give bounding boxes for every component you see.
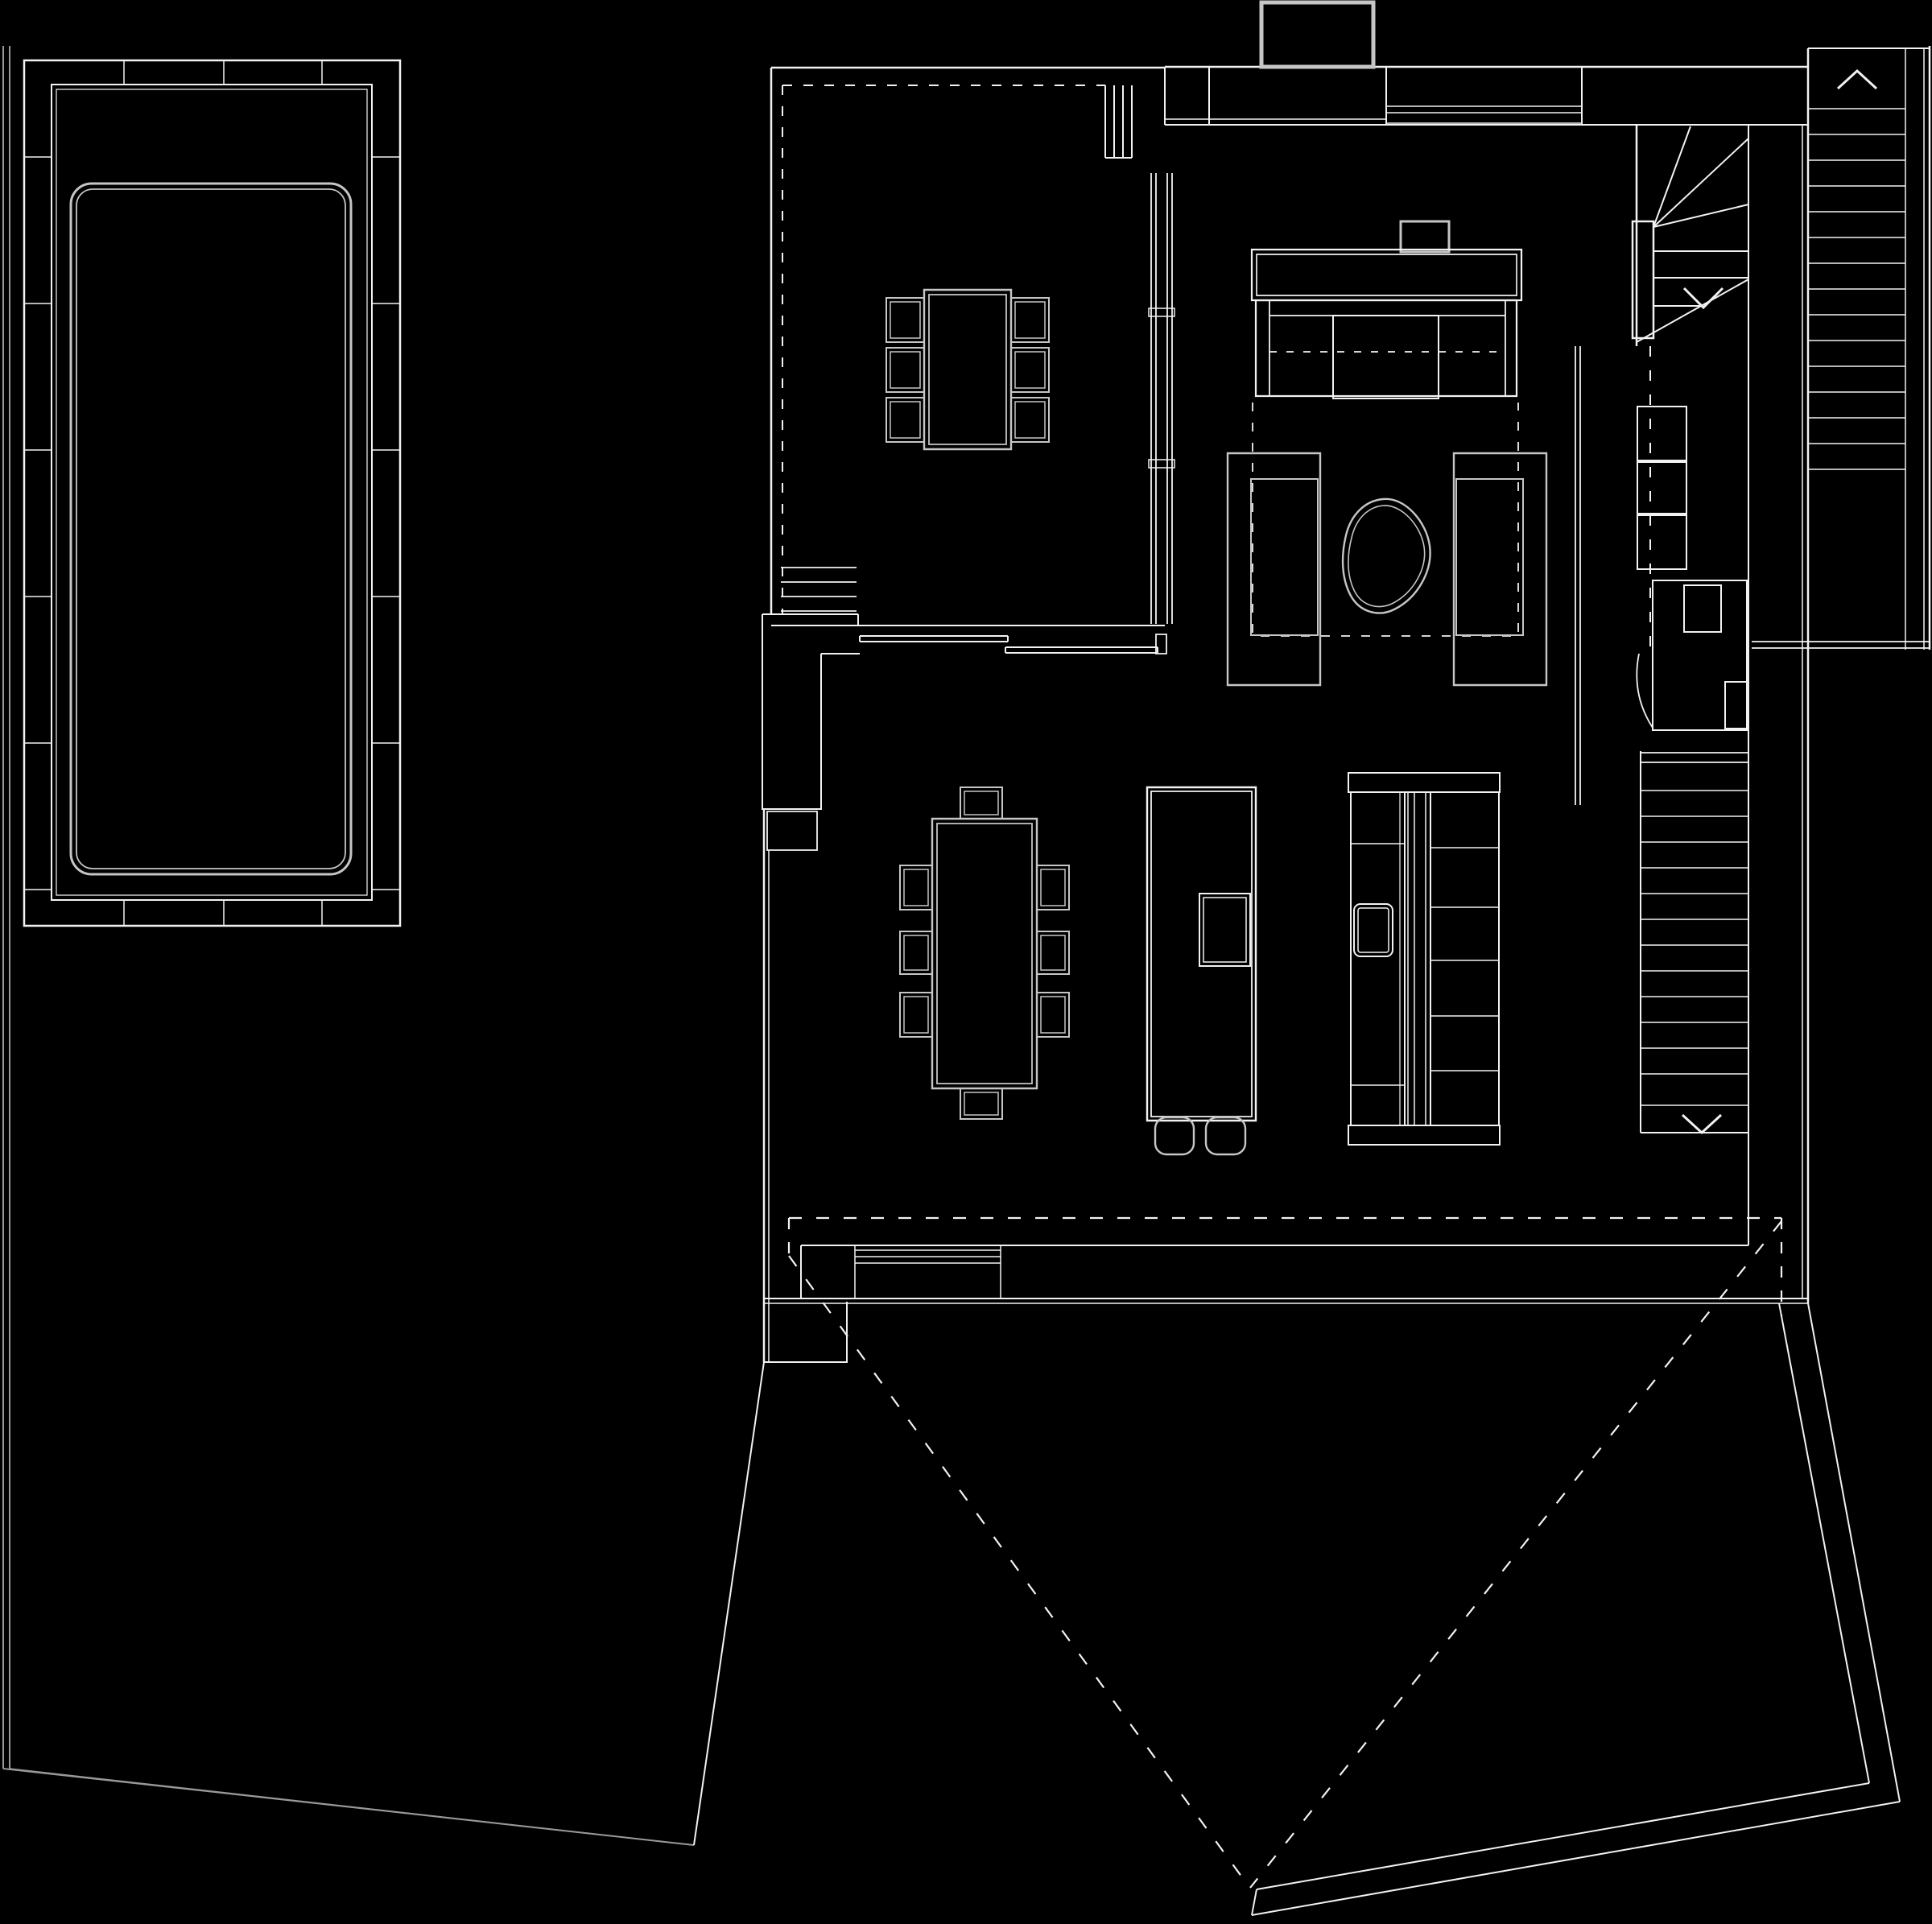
dining-table-upper-inner — [929, 295, 1006, 444]
exterior-stair-up-arrow — [1838, 71, 1876, 89]
sofa-outline — [1256, 300, 1517, 396]
west-porch-recess — [762, 614, 821, 809]
terrace-east-glazing-mullion-2 — [1149, 460, 1174, 468]
dining-chair-lower-r2-inner — [1041, 935, 1065, 970]
winder-stair-fan-treads — [1653, 126, 1690, 227]
terrace-boundary-south-inner — [1257, 1783, 1869, 1889]
dining-chair-lower-l2-inner — [904, 935, 928, 970]
armchair-left-seat — [1251, 479, 1318, 635]
dining-chair-lower-bottom-inner — [964, 1092, 998, 1115]
armchair-right — [1454, 453, 1546, 685]
wc-door-swing-arc — [1637, 654, 1653, 728]
dining-chair-upper-l3 — [886, 398, 924, 442]
hall-closet-1 — [1637, 407, 1686, 460]
kitchen-cooktop-inner — [1358, 908, 1389, 952]
dining-chair-lower-l1 — [900, 865, 932, 910]
dining-table-lower — [932, 819, 1037, 1088]
winder-stair-fan-treads — [1653, 138, 1748, 227]
dining-chair-lower-r1-inner — [1041, 869, 1065, 906]
basement-stair-down-arrow — [1682, 1115, 1721, 1133]
pool-basin-edge — [56, 89, 367, 895]
site-boundary-sw-diagonal-b — [10, 1769, 694, 1845]
hall-closet-3 — [1637, 515, 1686, 569]
kitchen-island-sink — [1199, 894, 1250, 966]
rug-dash-outline — [1253, 403, 1518, 636]
coffee-table-inner — [1348, 506, 1425, 607]
dining-chair-upper-r2 — [1011, 348, 1049, 392]
kitchen-wall-unit-top-cap — [1348, 773, 1500, 792]
pool-water-inner — [76, 189, 345, 869]
dining-chair-upper-l2 — [886, 348, 924, 392]
armchair-left — [1228, 453, 1320, 685]
pool-deck-inner — [52, 85, 372, 900]
kitchen-island — [1147, 787, 1256, 1121]
dining-chair-upper-r1 — [1011, 298, 1049, 342]
sideboard-inner — [1257, 254, 1517, 295]
chimney — [1261, 2, 1373, 67]
bar-stool-1 — [1155, 1117, 1194, 1154]
dining-chair-lower-r3-inner — [1041, 997, 1065, 1033]
wc-room — [1653, 580, 1747, 730]
roof-projection-dash-left-diagonal — [789, 1256, 1249, 1886]
terrace-boundary-east-outer — [1808, 1303, 1900, 1802]
terrace-boundary-west — [694, 1362, 764, 1845]
dining-chair-upper-r3 — [1011, 398, 1049, 442]
wc-sink — [1684, 585, 1721, 632]
floor-plan — [0, 0, 1932, 1924]
kitchen-island-inner — [1151, 791, 1252, 1117]
dining-chair-upper-r3-inner — [1015, 402, 1045, 438]
terrace-boundary-south-outer — [1252, 1802, 1900, 1915]
kitchen-wall-unit-bottom-cap — [1348, 1125, 1500, 1145]
dining-chair-lower-top-inner — [964, 791, 998, 815]
tv-unit — [1401, 221, 1449, 252]
kitchen-wall-unit-right-column — [1430, 792, 1499, 1125]
dining-chair-lower-top — [960, 787, 1002, 819]
dining-chair-lower-r2 — [1037, 931, 1069, 974]
dining-chair-lower-r3 — [1037, 993, 1069, 1037]
dining-table-lower-inner — [937, 824, 1032, 1084]
dining-chair-upper-l2-inner — [890, 352, 920, 388]
dining-table-upper — [924, 290, 1011, 449]
terrace-boundary-east-inner — [1779, 1303, 1869, 1783]
dining-chair-lower-l3-inner — [904, 997, 928, 1033]
coffee-table-outer — [1343, 499, 1430, 613]
dining-chair-lower-r1 — [1037, 865, 1069, 910]
terrace-east-glazing-mullion-1 — [1149, 308, 1174, 316]
dining-chair-upper-r2-inner — [1015, 352, 1045, 388]
dining-chair-upper-l1 — [886, 298, 924, 342]
kitchen-cooktop — [1354, 904, 1393, 956]
sofa-chaise — [1333, 316, 1439, 398]
pool-water-outer — [71, 184, 351, 874]
dining-chair-upper-r1-inner — [1015, 302, 1045, 338]
kitchen-wall-unit-left-column — [1351, 792, 1405, 1125]
bar-stool-2 — [1206, 1117, 1245, 1154]
armchair-right-seat — [1456, 479, 1523, 635]
kitchen-island-sink-inner — [1203, 898, 1246, 962]
hall-closet-2 — [1637, 462, 1686, 514]
terrace-boundary-apex-cap — [1252, 1889, 1257, 1915]
dining-chair-upper-l1-inner — [890, 302, 920, 338]
sw-wall-block — [764, 1302, 847, 1362]
sideboard — [1252, 250, 1521, 300]
page — [0, 0, 1932, 1924]
west-entry-door — [767, 811, 817, 850]
dining-chair-upper-l3-inner — [890, 402, 920, 438]
dining-chair-lower-l1-inner — [904, 869, 928, 906]
roof-projection-dash-right-diagonal — [1250, 1221, 1781, 1888]
dining-chair-lower-l2 — [900, 931, 932, 974]
winder-stair-fan-treads — [1653, 204, 1748, 227]
dining-chair-lower-l3 — [900, 993, 932, 1037]
wc-toilet — [1725, 682, 1747, 729]
